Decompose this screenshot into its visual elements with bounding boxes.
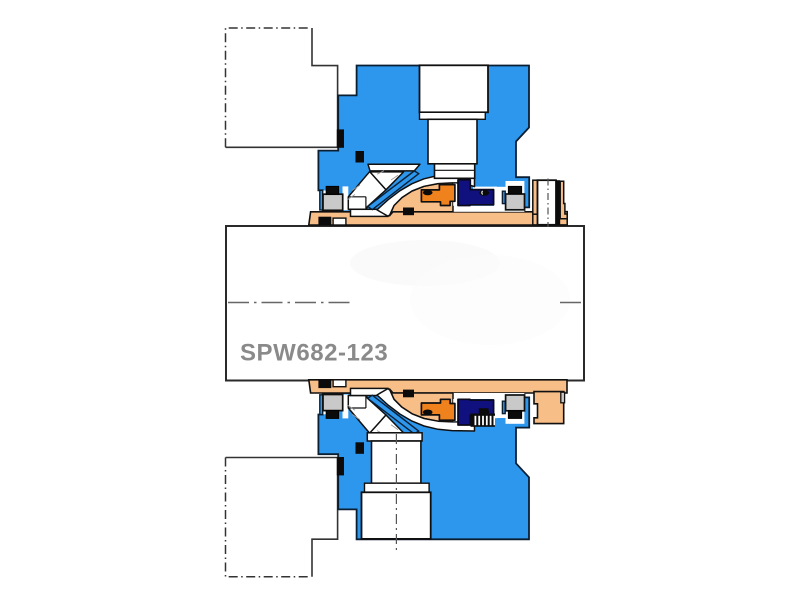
svg-text:SPW682-123: SPW682-123 <box>240 340 388 367</box>
